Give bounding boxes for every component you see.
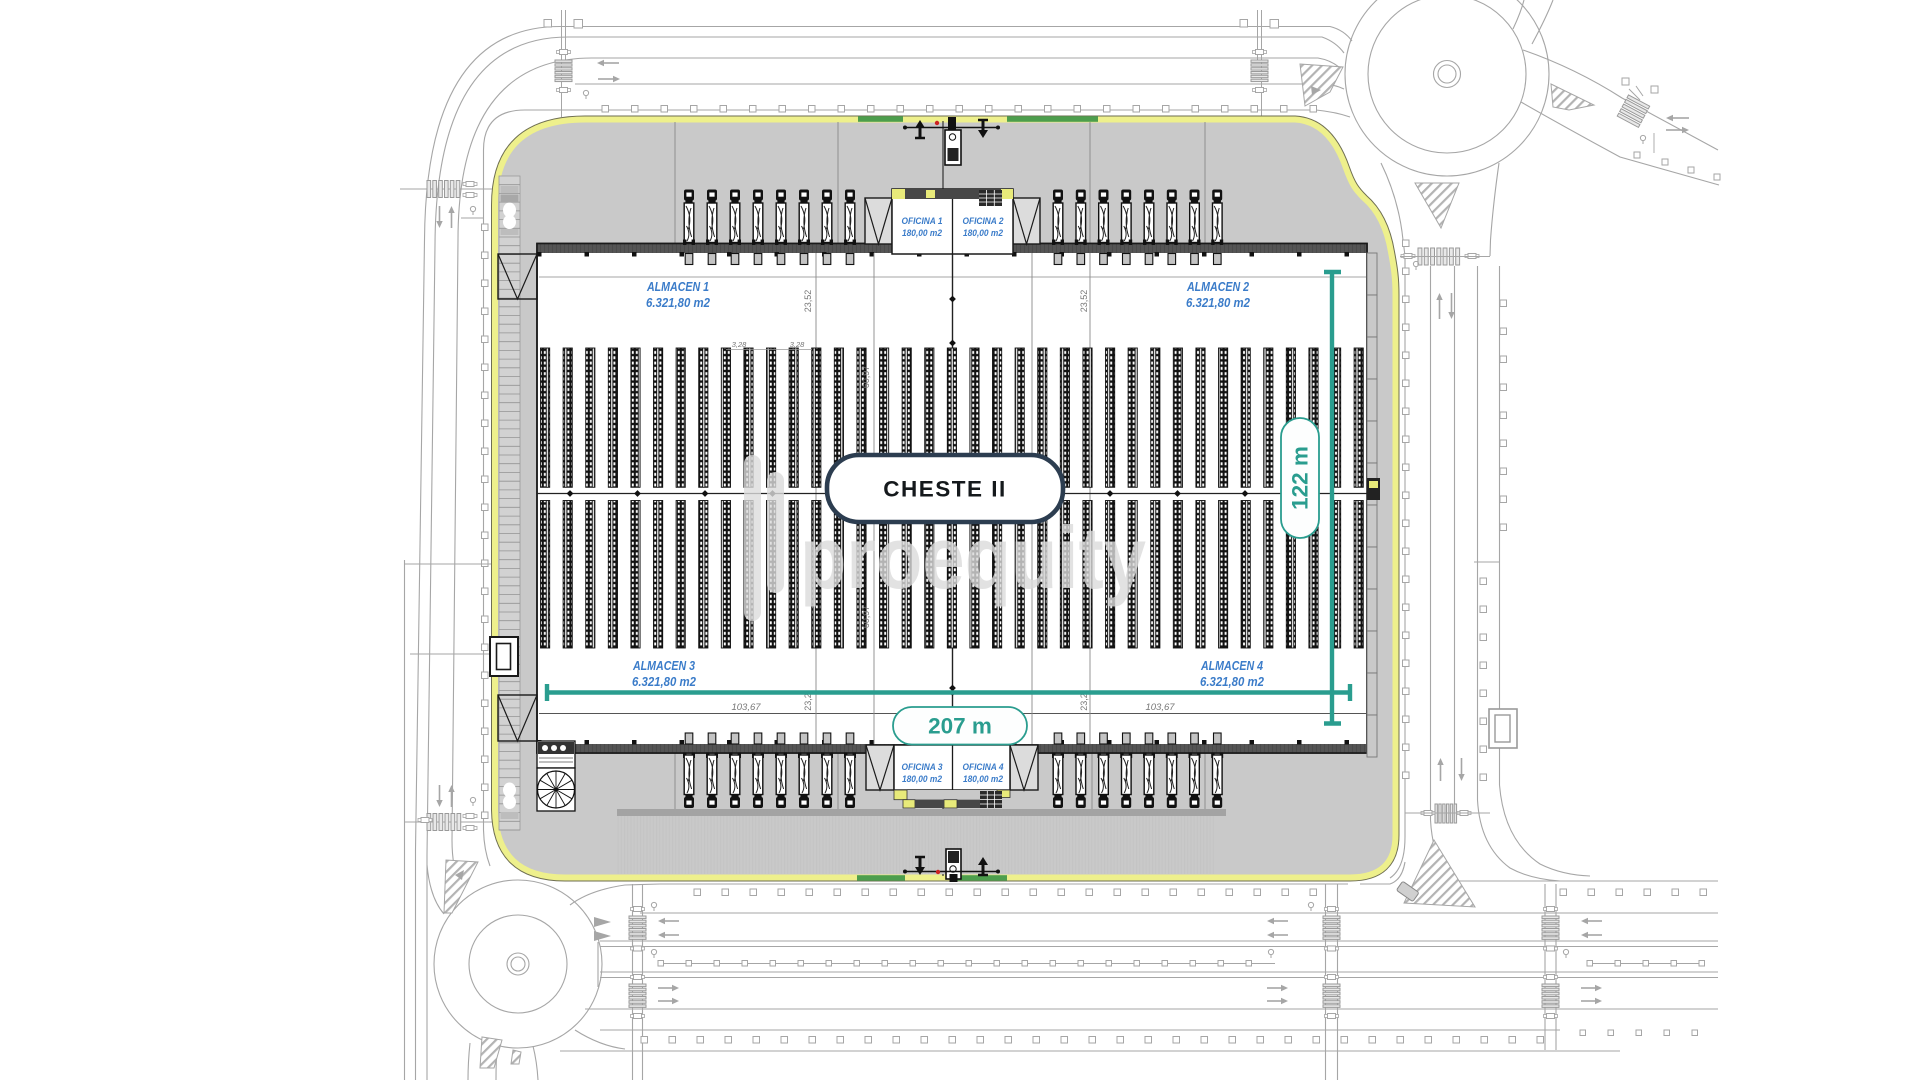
svg-text:OFICINA 1: OFICINA 1 xyxy=(902,216,943,227)
svg-text:103,67: 103,67 xyxy=(731,702,761,713)
svg-text:ALMACEN 2: ALMACEN 2 xyxy=(1186,279,1249,294)
svg-text:6.321,80 m2: 6.321,80 m2 xyxy=(1200,674,1265,689)
svg-text:180,00 m2: 180,00 m2 xyxy=(963,228,1004,239)
svg-text:6.321,80 m2: 6.321,80 m2 xyxy=(646,295,711,310)
svg-text:6.321,80 m2: 6.321,80 m2 xyxy=(1186,295,1251,310)
svg-text:ALMACEN 1: ALMACEN 1 xyxy=(646,279,709,294)
svg-text:6.321,80 m2: 6.321,80 m2 xyxy=(632,674,697,689)
svg-text:60,97: 60,97 xyxy=(861,366,871,389)
svg-text:23,2: 23,2 xyxy=(1079,693,1089,711)
svg-text:207 m: 207 m xyxy=(928,714,992,739)
svg-text:3,28: 3,28 xyxy=(732,340,747,349)
svg-text:ALMACEN 4: ALMACEN 4 xyxy=(1200,658,1263,673)
svg-text:3,28: 3,28 xyxy=(790,340,805,349)
svg-text:23,2: 23,2 xyxy=(803,693,813,711)
svg-text:180,00 m2: 180,00 m2 xyxy=(963,774,1004,785)
svg-text:23,52: 23,52 xyxy=(803,290,813,313)
svg-text:103,67: 103,67 xyxy=(1145,702,1175,713)
svg-text:23,52: 23,52 xyxy=(1079,290,1089,313)
svg-text:OFICINA 4: OFICINA 4 xyxy=(963,762,1005,773)
svg-text:60,97: 60,97 xyxy=(861,606,871,629)
svg-text:180,00 m2: 180,00 m2 xyxy=(902,228,943,239)
svg-text:CHESTE II: CHESTE II xyxy=(883,477,1007,502)
svg-text:ALMACEN 3: ALMACEN 3 xyxy=(632,658,695,673)
svg-text:122 m: 122 m xyxy=(1288,446,1313,510)
svg-text:OFICINA 3: OFICINA 3 xyxy=(902,762,944,773)
svg-text:180,00 m2: 180,00 m2 xyxy=(902,774,943,785)
svg-text:OFICINA 2: OFICINA 2 xyxy=(963,216,1005,227)
